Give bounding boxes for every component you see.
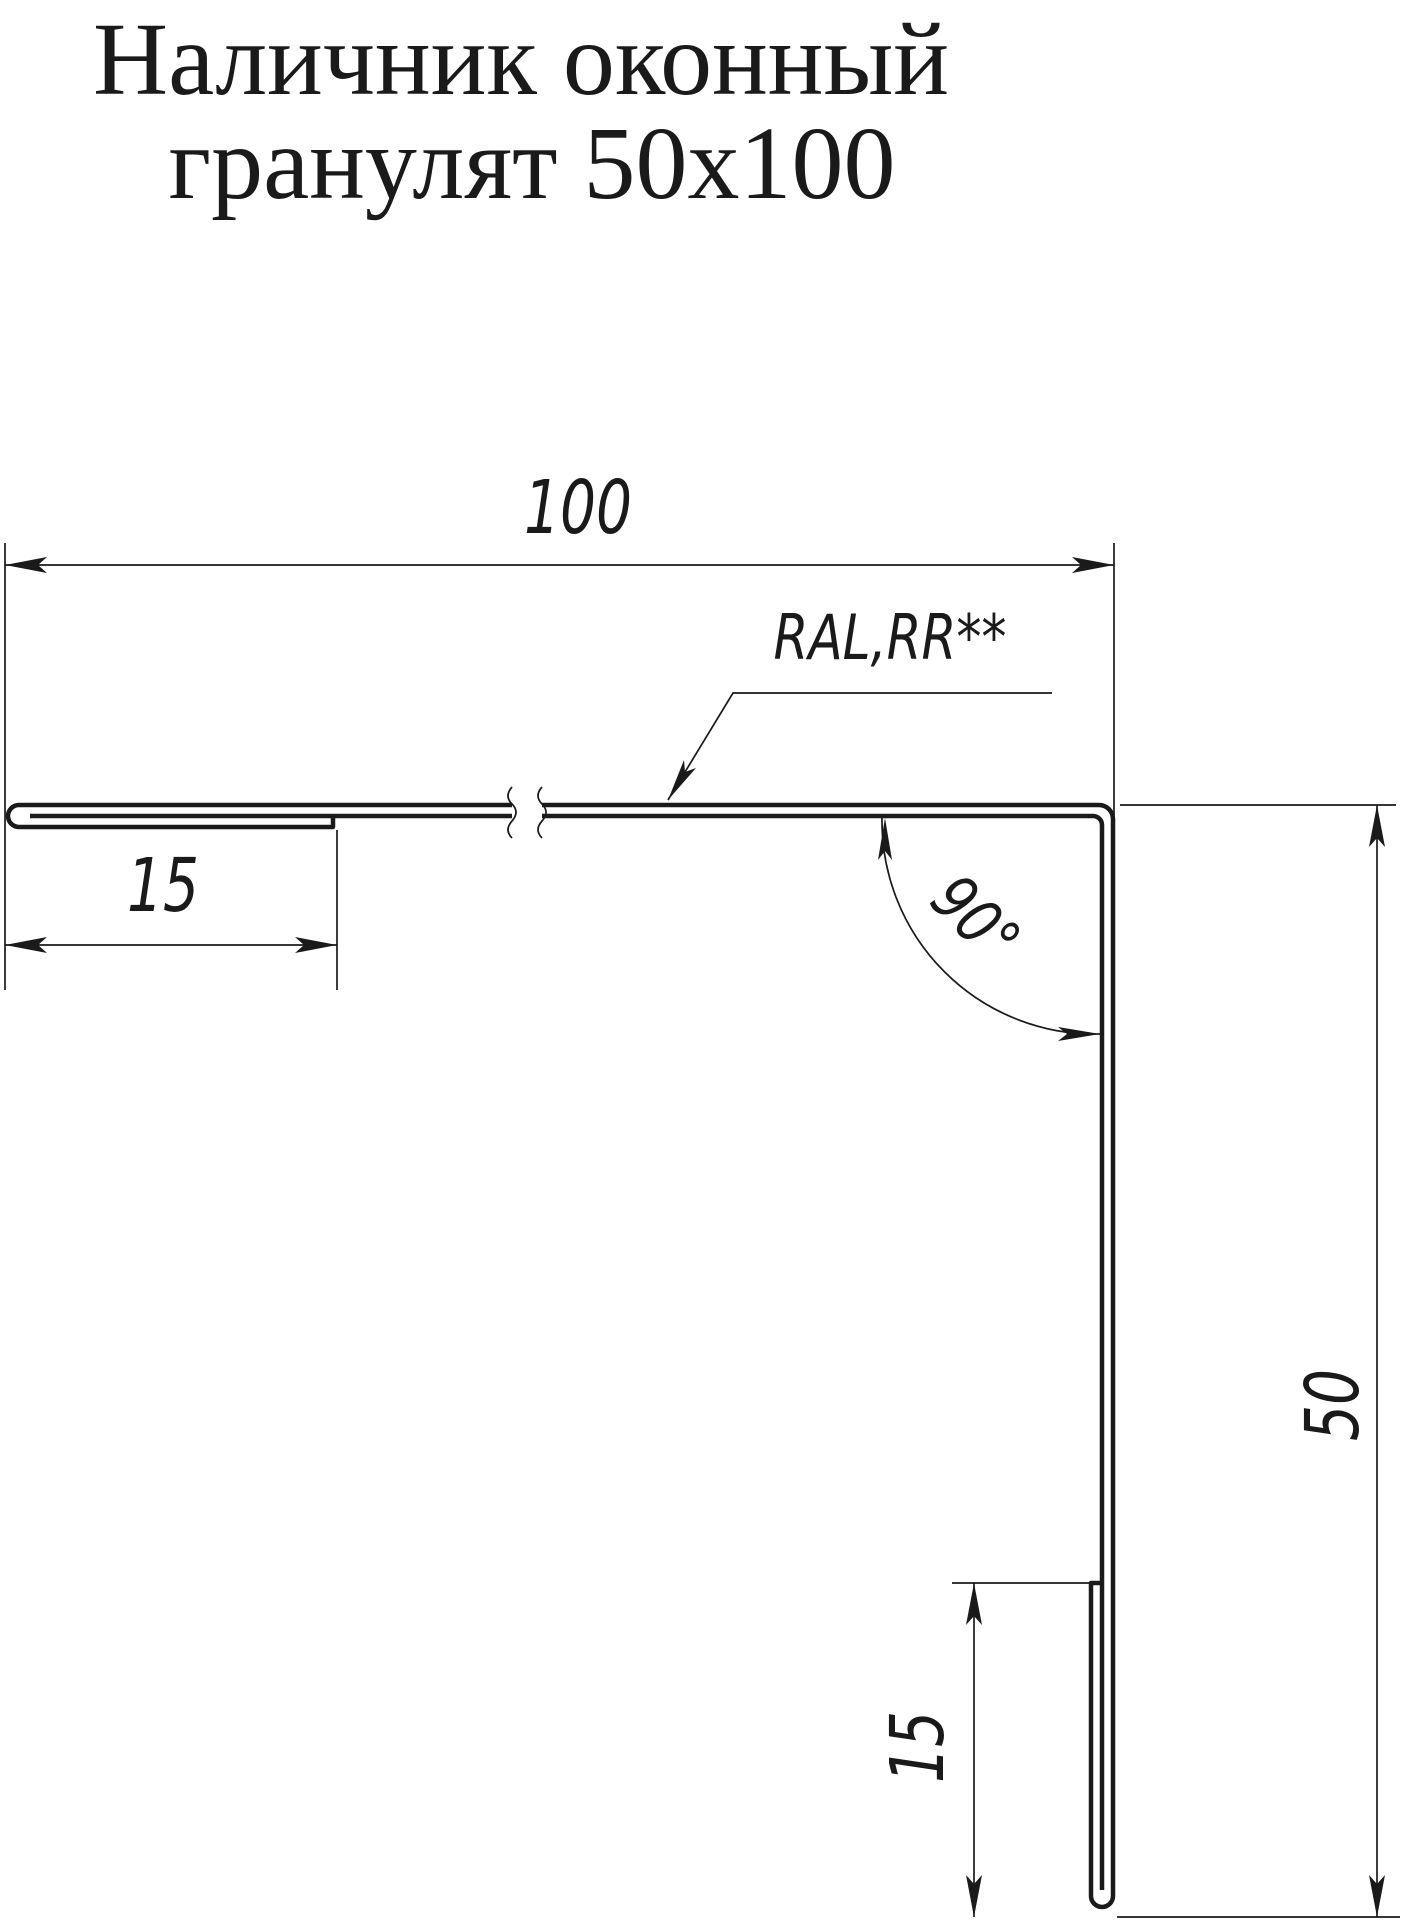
dim-width-top-label: 100 [524,471,632,545]
dimension-extension-lines [5,543,1400,1917]
title-line-2: гранулят 50х100 [168,112,895,216]
dimension-lines [5,565,1377,1917]
material-leader-line [668,693,1052,800]
break-wave-right [538,787,546,838]
arrow-material-leader [668,760,696,800]
break-wave-left [508,787,516,838]
arrowheads [5,557,1385,1917]
material-note-label: RAL,RR** [773,607,1006,669]
drawing-canvas: Наличник оконный гранулят 50х100 100 RAL… [0,0,1402,1920]
break-symbol [508,787,546,838]
title-line-1: Наличник оконный [93,8,949,112]
arrow-angle-right [1058,1027,1100,1041]
dim-hem-left-label: 15 [127,849,199,923]
dim-hem-bottom-label: 15 [881,1711,955,1783]
dim-height-right-label: 50 [1296,1369,1370,1441]
profile-drawing [0,0,1402,1920]
